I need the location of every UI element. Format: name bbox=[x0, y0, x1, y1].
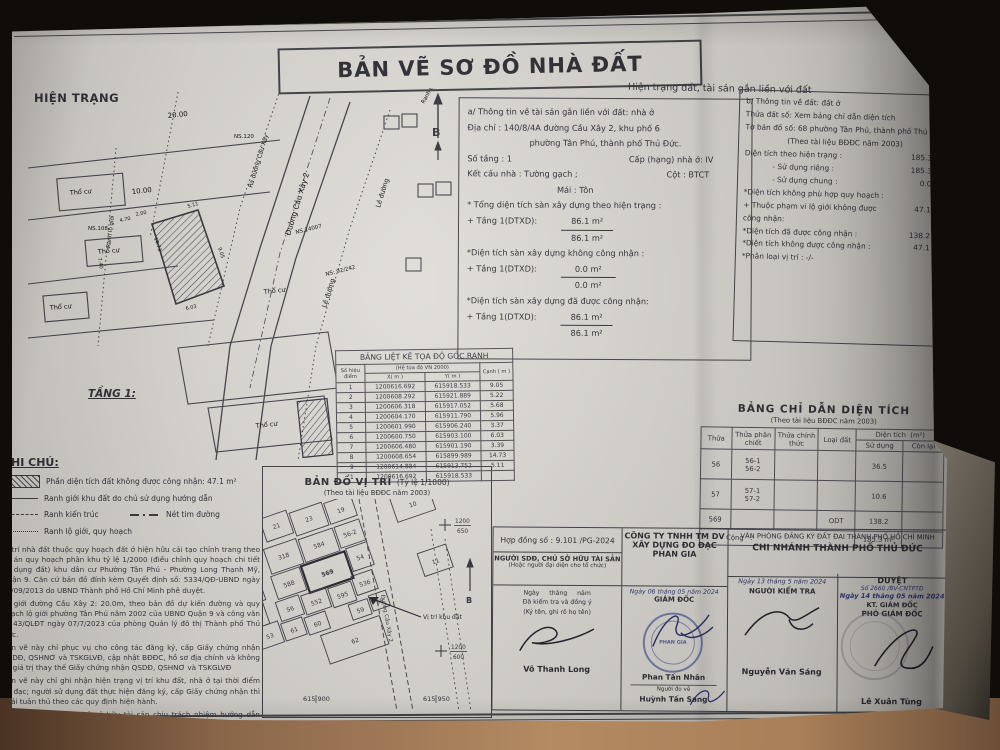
legend-row: Phần diện tích đất không được công nhận:… bbox=[2, 475, 260, 488]
dim-label: 6.03 bbox=[185, 304, 197, 312]
page-title: BẢN VẼ SƠ ĐỒ NHÀ ĐẤT bbox=[337, 52, 643, 82]
info-a-value: 0.0 m² bbox=[561, 278, 616, 294]
floor-label: TẦNG 1: bbox=[88, 388, 136, 400]
grid-cross-label: 1200 650 bbox=[455, 519, 470, 535]
info-a-roof: Mái : Tôn bbox=[407, 182, 743, 199]
company-header: CÔNG TY TNHH TM DV XÂY DỰNG ĐO ĐẠC PHAN … bbox=[621, 528, 727, 587]
parcel-number: 21 bbox=[272, 522, 282, 531]
area-row: 57 57-157-2 10.6 bbox=[700, 479, 943, 512]
dim-label: 9.05 bbox=[216, 247, 225, 259]
approver-name: Lê Xuân Tùng bbox=[836, 697, 946, 707]
parcel-number: 61 bbox=[290, 626, 300, 635]
info-a-line: *Diện tích sàn xây dựng đã được công nhậ… bbox=[467, 293, 743, 310]
notes-heading: GHI CHÚ: bbox=[2, 456, 260, 469]
col-header-point: Số hiệu điểm bbox=[336, 364, 365, 382]
solid-line-swatch bbox=[2, 498, 38, 499]
contract-number: Hợp đồng số : 9.101 /PG-2024 bbox=[493, 527, 621, 553]
info-a-fraction-row: + Tầng 1(DTXD): 86.1 m² 86.1 m² bbox=[467, 213, 743, 247]
owner-column: Hợp đồng số : 9.101 /PG-2024 NGƯỜI SDĐ, … bbox=[492, 527, 622, 710]
location-map-drawing: 21 23 19 318 584 56-2 588 569 54 25 56 5… bbox=[263, 499, 488, 711]
company-name-line2: XÂY DỰNG ĐO ĐẠC bbox=[621, 540, 727, 550]
info-a-column: Cột : BTCT bbox=[666, 168, 709, 184]
approver-column: DUYỆT Số 2660 /BV-CNTPTĐ Ngày 14 tháng 0… bbox=[836, 574, 947, 713]
info-a-line: Số tầng : 1 Cấp (hạng) nhà ở: IV bbox=[467, 151, 743, 168]
dim-label: 7.40 bbox=[96, 257, 104, 269]
company-sign-area: Ngày 06 tháng 05 năm 2024 GIÁM ĐỐC PHAN … bbox=[620, 588, 727, 715]
col-header-chinh-thuc: Thửa chính thức bbox=[775, 428, 819, 451]
dim-label: 5.11 bbox=[187, 201, 199, 210]
parcel-number: 318 bbox=[277, 552, 290, 562]
location-map-title: BẢN ĐỒ VỊ TRÍ bbox=[304, 477, 391, 488]
svg-text:600: 600 bbox=[453, 655, 464, 661]
location-map-header: BẢN ĐỒ VỊ TRÍ (Tỷ lệ 1/1000) bbox=[263, 470, 491, 489]
parcel-number: 19 bbox=[336, 506, 346, 515]
grid-cross bbox=[435, 645, 447, 657]
parcel-label: Thổ cư bbox=[262, 285, 287, 296]
svg-text:650: 650 bbox=[457, 529, 468, 535]
road-label: Ra đường Cầu Xây bbox=[246, 133, 270, 189]
note-paragraph: Vị trí nhà đất thuộc quy hoạch đất ở hiệ… bbox=[2, 545, 260, 596]
parcel-number: 11 bbox=[431, 557, 441, 566]
col-header-thua: Thửa bbox=[701, 427, 732, 449]
parcel-number: 10 bbox=[408, 500, 418, 509]
house-number-label: NS.108 bbox=[88, 226, 108, 232]
parcel-number: 595 bbox=[336, 591, 349, 601]
legend-label: Nét tim đường bbox=[166, 509, 220, 520]
note-paragraph: Lộ giới đường Cầu Xây 2: 20.0m, theo bản… bbox=[2, 599, 260, 640]
info-a-label: + Tầng 1(DTXD): bbox=[467, 213, 537, 246]
office-name: VĂN PHÒNG ĐĂNG KÝ ĐẤT ĐAI THÀNH PHỐ HỒ C… bbox=[728, 532, 948, 542]
director-name: Phan Tấn Nhân bbox=[621, 672, 727, 682]
marker-label: Vị trí khu đất bbox=[423, 614, 463, 621]
col-header-phan-chiet: Thửa phân chiết bbox=[731, 427, 775, 450]
document-paper: BẢN VẼ SƠ ĐỒ NHÀ ĐẤT Hiện trạng đất, tài… bbox=[0, 0, 1000, 750]
svg-text:1200: 1200 bbox=[451, 645, 466, 651]
parcel-number: 536 bbox=[359, 579, 372, 589]
info-a-value: 86.1 m² bbox=[560, 326, 612, 342]
info-a-grade: Cấp (hạng) nhà ở: IV bbox=[629, 152, 714, 168]
parcel-number: 53 bbox=[265, 632, 275, 641]
owner-signature bbox=[512, 616, 602, 659]
info-a-value: 86.1 m² bbox=[561, 214, 613, 231]
dim-label: 2.00 bbox=[135, 210, 147, 218]
company-role: GIÁM ĐỐC bbox=[621, 595, 727, 604]
owner-name: Võ Thanh Long bbox=[493, 664, 621, 677]
house-number-label: NS.120 bbox=[234, 134, 254, 140]
road-label: Lề đường bbox=[374, 177, 390, 208]
location-map-subtitle: (Theo tài liệu BĐĐC năm 2003) bbox=[263, 489, 491, 497]
map-north-arrow bbox=[467, 559, 473, 591]
info-a-value: 86.1 m² bbox=[561, 309, 613, 326]
grid-cross-label: 1200 600 bbox=[451, 645, 466, 661]
info-a-value: 0.0 m² bbox=[561, 262, 616, 279]
info-a-line: phường Tân Phú, thành phố Thủ Đức. bbox=[467, 135, 743, 152]
area-table-section: BẢNG CHỈ DẪN DIỆN TÍCH (Theo tài liệu BĐ… bbox=[699, 402, 947, 548]
company-name-line3: PHAN GIA bbox=[621, 549, 727, 559]
office-branch: CHI NHÁNH THÀNH PHỐ THỦ ĐỨC bbox=[727, 543, 947, 555]
parcel-number: 552 bbox=[310, 597, 323, 607]
coordinate-table-section: BẢNG LIỆT KÊ TỌA ĐỘ GÓC RANH Số hiệu điể… bbox=[335, 348, 515, 483]
legend-label: Ranh lộ giới, quy hoạch bbox=[44, 526, 132, 537]
dim-label: 20.00 bbox=[167, 110, 188, 120]
col-header-su-dung: Sử dụng bbox=[856, 440, 903, 452]
company-column: CÔNG TY TNHH TM DV XÂY DỰNG ĐO ĐẠC PHAN … bbox=[620, 528, 728, 711]
map-north-label: B bbox=[466, 596, 472, 605]
legend-row: Ranh lộ giới, quy hoạch bbox=[2, 526, 260, 537]
dotted-line-swatch bbox=[2, 531, 38, 532]
parcel-label: Thổ cư bbox=[68, 186, 92, 197]
checker-date: Ngày 13 tháng 5 năm 2024 bbox=[727, 577, 837, 586]
hatch-swatch bbox=[2, 475, 40, 488]
land-info-box: b/ Thông tin về đất: đất ở Thửa đất số: … bbox=[733, 89, 954, 347]
parcel-number: 60 bbox=[313, 620, 323, 629]
dim-label: 4.70 bbox=[119, 216, 131, 224]
approve-date: Ngày 14 tháng 05 năm 2024 bbox=[837, 592, 947, 601]
legend-row: Ranh kiến trúc Nét tim đường bbox=[2, 509, 260, 520]
legend-row: Ranh giới khu đất do chủ sử dụng hướng d… bbox=[2, 493, 260, 504]
parcel-label: Thổ cư bbox=[48, 301, 72, 312]
map-coord-left: 615 900 bbox=[303, 695, 330, 703]
info-a-line: * Tổng diện tích sàn xây dựng theo hiện … bbox=[467, 198, 743, 215]
legend-label: Ranh giới khu đất do chủ sử dụng hướng d… bbox=[44, 493, 213, 504]
parcel-number: 62 bbox=[350, 637, 360, 646]
info-a-fraction-row: + Tầng 1(DTXD): 86.1 m² 86.1 m² bbox=[466, 309, 742, 343]
road-label: Lề đường bbox=[320, 277, 336, 308]
location-map-scale: (Tỷ lệ 1/1000) bbox=[397, 478, 450, 487]
owner-header: NGƯỜI SDĐ, CHỦ SỞ HỮU TÀI SẢN (Hoặc ngườ… bbox=[493, 552, 621, 586]
owner-sign-area: Ngày tháng năm Đã kiểm tra và đồng ý (Ký… bbox=[493, 585, 622, 676]
legend-label: Ranh kiến trúc bbox=[44, 509, 124, 520]
dashed-line-swatch bbox=[2, 514, 38, 515]
map-road-label: Đường Cầu Xây 2 bbox=[379, 594, 395, 643]
parcel-number-subject: 569 bbox=[321, 568, 335, 579]
parcel-number: 588 bbox=[283, 579, 296, 589]
legend-label: Phần diện tích đất không được công nhận:… bbox=[46, 476, 237, 487]
grid-cross bbox=[439, 519, 451, 531]
parcel-number: 59 bbox=[356, 606, 366, 615]
area-row: 56 56-156-2 36.5 bbox=[700, 449, 943, 482]
map-coord-right: 615 950 bbox=[423, 695, 450, 703]
signature-block: Hợp đồng số : 9.101 /PG-2024 NGƯỜI SDĐ, … bbox=[491, 526, 948, 713]
svg-text:1200: 1200 bbox=[455, 519, 470, 525]
director-signature bbox=[647, 606, 717, 654]
dashdot-line-swatch bbox=[130, 514, 160, 516]
info-a-line: Địa chỉ : 140/8/4A đường Cầu Xây 2, khu … bbox=[467, 120, 743, 137]
info-a-line: Kết cấu nhà : Tường gạch ; Cột : BTCT bbox=[467, 167, 743, 184]
office-header: VĂN PHÒNG ĐĂNG KÝ ĐẤT ĐAI THÀNH PHỐ HỒ C… bbox=[727, 529, 947, 579]
checker-column: Ngày 13 tháng 5 năm 2024 NGƯỜI KIỂM TRA … bbox=[726, 573, 838, 712]
parcel-number: 23 bbox=[304, 515, 314, 524]
parcel-number: 56-2 bbox=[342, 528, 357, 539]
owner-subtitle: (Hoặc người đại diện cho tổ chức) bbox=[493, 562, 621, 569]
note-paragraph: Bản vẽ này chỉ phục vụ cho công tác đăng… bbox=[2, 643, 260, 674]
house-number-label: NS.14007 bbox=[295, 224, 323, 236]
info-a-label: + Tầng 1(DTXD): bbox=[467, 261, 537, 294]
info-a-label: + Tầng 1(DTXD): bbox=[466, 309, 536, 342]
note-paragraph: Bản vẽ này chỉ ghi nhận hiện trạng vị tr… bbox=[2, 676, 260, 707]
photographed-survey-document: BẢN VẼ SƠ ĐỒ NHÀ ĐẤT Hiện trạng đất, tài… bbox=[0, 0, 1000, 750]
parcel-number: 54 bbox=[356, 553, 366, 562]
location-map-section: BẢN ĐỒ VỊ TRÍ (Tỷ lệ 1/1000) (Theo tài l… bbox=[262, 466, 492, 718]
col-header-edge: Cạnh ( m ) bbox=[480, 362, 513, 380]
checker-name: Nguyễn Văn Sáng bbox=[727, 667, 837, 677]
notes-section: GHI CHÚ: Phần diện tích đất không được c… bbox=[2, 456, 260, 730]
subject-marker bbox=[369, 597, 421, 617]
north-label: B bbox=[432, 126, 440, 139]
parcel-label: Thổ cư bbox=[254, 419, 279, 430]
approver-signature bbox=[867, 618, 939, 675]
parcel-number: 584 bbox=[313, 541, 326, 551]
parcel-number: 56 bbox=[286, 605, 296, 614]
house-number-label: NS: 92/242 bbox=[325, 265, 356, 278]
info-a-floors: Số tầng : 1 bbox=[467, 151, 512, 167]
info-a-line: a/ Thông tin về tài sản gắn liền với đất… bbox=[468, 104, 744, 121]
surveyor-signature bbox=[686, 685, 726, 711]
checker-signature bbox=[739, 601, 825, 652]
hatched-subject-parcel bbox=[152, 210, 333, 457]
info-a-value: 86.1 m² bbox=[561, 230, 613, 246]
info-a-structure: Kết cấu nhà : Tường gạch ; bbox=[467, 167, 577, 183]
checker-role: NGƯỜI KIỂM TRA bbox=[727, 587, 837, 596]
info-a-line: *Diện tích sàn xây dựng không công nhận … bbox=[467, 245, 743, 262]
dim-label: 10.00 bbox=[131, 186, 152, 196]
info-a-fraction-row: + Tầng 1(DTXD): 0.0 m² 0.0 m² bbox=[467, 261, 743, 295]
col-header-loai-dat: Loại đất bbox=[818, 428, 856, 451]
asset-info-box: a/ Thông tin về tài sản gắn liền với đất… bbox=[457, 97, 752, 361]
